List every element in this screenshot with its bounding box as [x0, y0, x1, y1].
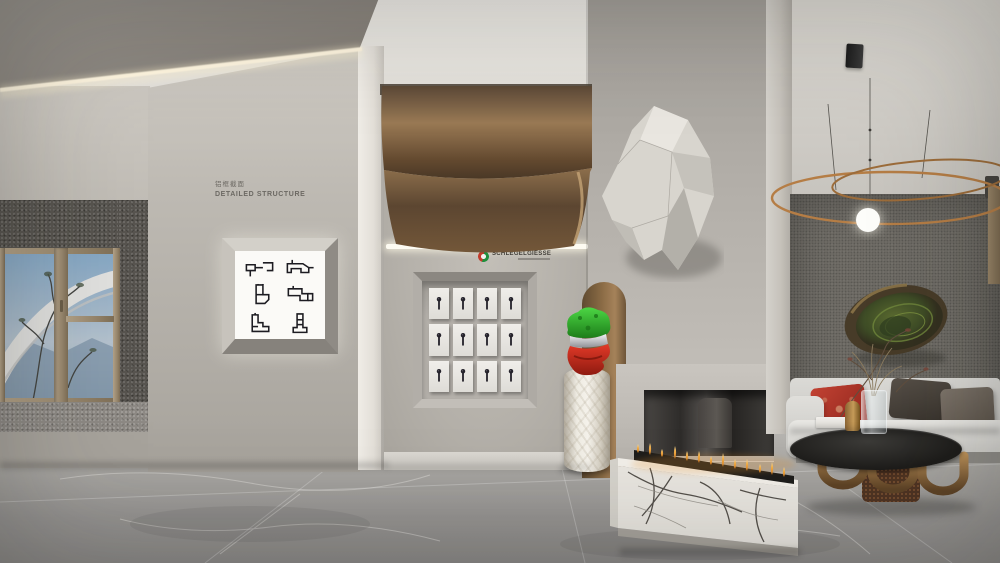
profile-drawing-icon — [283, 283, 317, 306]
window-handle-icon — [432, 363, 446, 389]
window-frame-right — [113, 248, 120, 405]
handle-cards-grid — [422, 281, 528, 399]
gold-figurine — [845, 401, 860, 431]
window-handle-icon — [504, 327, 518, 353]
pendant-sphere — [856, 208, 880, 232]
handle-card — [477, 324, 497, 355]
showroom-render: 铝框截面 DETAILED STRUCTURE SCHLEGELGIESSE — [0, 0, 1000, 563]
handle-card — [453, 361, 473, 392]
window-handle-icon — [432, 291, 446, 317]
window-handle-icon — [504, 363, 518, 389]
handle-card — [501, 288, 521, 319]
window-frame-left — [0, 248, 5, 405]
window-mullion — [54, 248, 68, 405]
handle-card — [429, 288, 449, 319]
granite-sill — [0, 402, 160, 434]
granite-jamb — [118, 200, 150, 432]
accentwall-floor-shadow — [790, 428, 1000, 434]
handle-card — [477, 288, 497, 319]
profile-drawing-icon — [283, 311, 317, 334]
barrel-lower — [384, 168, 592, 253]
handle-card — [501, 361, 521, 392]
marble-end-face — [610, 458, 618, 528]
logo-subline — [518, 258, 550, 260]
copper-ring-large — [772, 172, 1000, 224]
signage-line-zh: 铝框截面 — [215, 180, 305, 190]
floor-blotch — [130, 506, 370, 542]
window-handle-icon — [480, 291, 494, 317]
handle-card — [453, 324, 473, 355]
fireplace-floor-shadow — [620, 548, 800, 556]
window-transom — [66, 316, 114, 322]
handle-card — [429, 361, 449, 392]
ring-chandelier — [770, 70, 1000, 240]
profile-drawing-icon — [243, 311, 277, 334]
window-handle-icon — [480, 363, 494, 389]
profile-drawings-grid — [235, 251, 325, 339]
handle-card — [501, 324, 521, 355]
alcove-floor-shadow — [386, 464, 590, 470]
fireplace-base — [608, 436, 808, 560]
signage-line-en: DETAILED STRUCTURE — [215, 190, 305, 201]
ceiling-spotlight — [845, 44, 863, 69]
flame-glow — [631, 454, 795, 474]
profile-drawing-icon — [243, 256, 277, 279]
profile-drawing-icon — [243, 283, 277, 306]
led-cove — [0, 40, 380, 110]
window-handle-icon — [456, 327, 470, 353]
window-handle-icon — [480, 327, 494, 353]
bronze-ceiling-feature — [352, 84, 592, 256]
handle-card — [429, 324, 449, 355]
bust-green-top — [567, 307, 610, 338]
window-handle — [60, 300, 63, 312]
handle-card — [477, 361, 497, 392]
wall-floor-shadow — [0, 462, 388, 469]
signage: 铝框截面 DETAILED STRUCTURE — [215, 180, 305, 200]
rock-sculpture — [592, 100, 724, 282]
window-handle-icon — [504, 291, 518, 317]
window-handle-icon — [456, 363, 470, 389]
window-handle-icon — [432, 327, 446, 353]
handle-display-panel — [413, 272, 537, 408]
bust-sculpture — [558, 304, 620, 384]
window-handle-icon — [456, 291, 470, 317]
window-view — [0, 248, 120, 405]
profile-drawing-icon — [283, 256, 317, 279]
coffee-table-top — [790, 428, 962, 470]
handle-card — [453, 288, 473, 319]
barrel-upper — [381, 86, 592, 179]
profile-lightbox — [222, 238, 338, 354]
